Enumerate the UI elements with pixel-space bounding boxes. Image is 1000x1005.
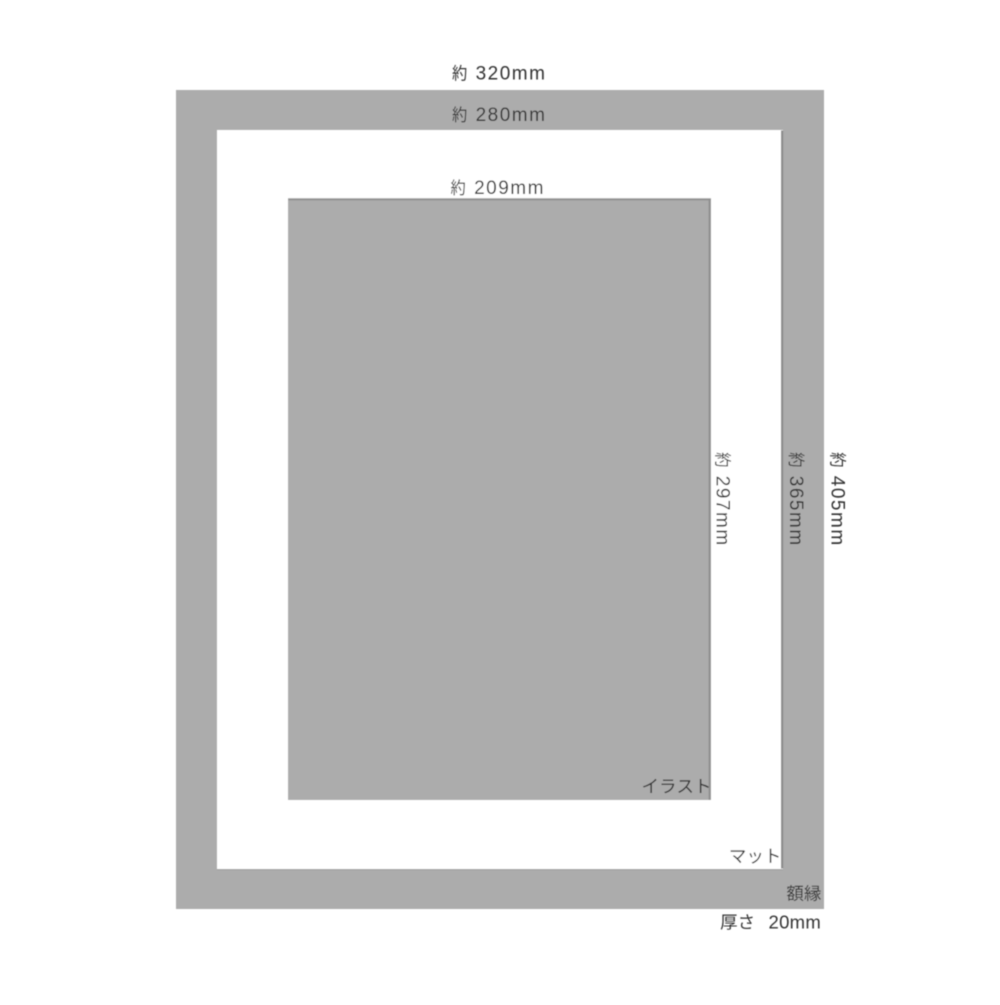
svg-text:209mm: 209mm [474, 178, 545, 199]
svg-text:365mm: 365mm [785, 476, 806, 547]
svg-text:320mm: 320mm [476, 64, 547, 85]
svg-text:297mm: 297mm [711, 476, 732, 547]
svg-text:405mm: 405mm [827, 476, 848, 547]
svg-text:20mm: 20mm [769, 911, 822, 932]
svg-text:280mm: 280mm [476, 105, 547, 126]
